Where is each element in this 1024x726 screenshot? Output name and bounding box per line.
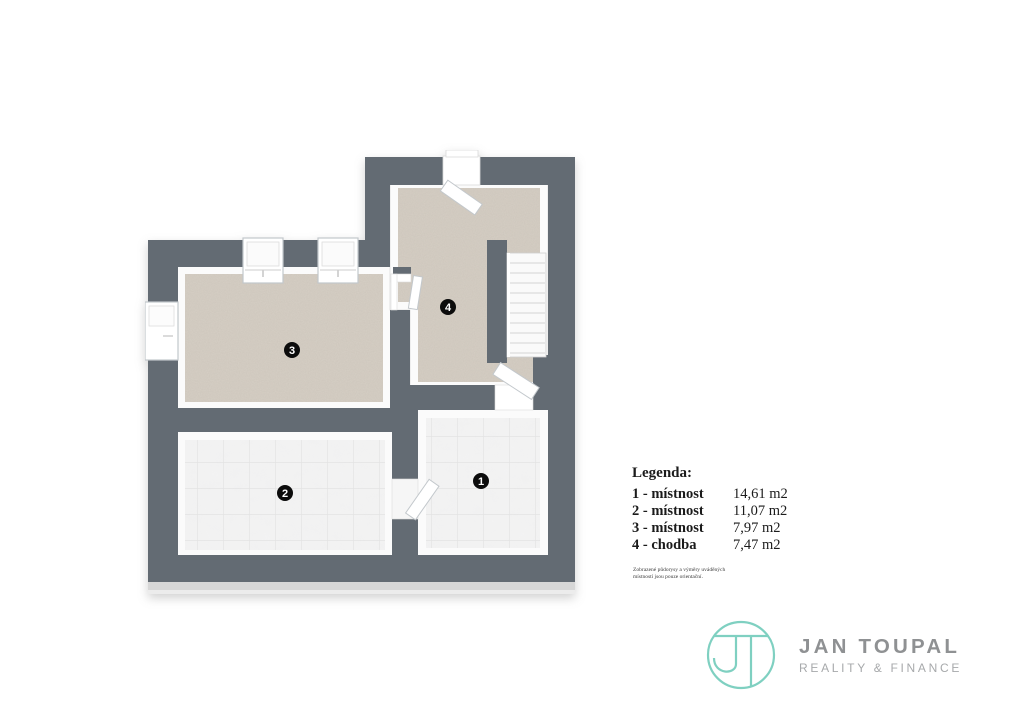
brand-logo: JAN TOUPAL REALITY & FINANCE xyxy=(705,619,962,691)
floor-slab-edge xyxy=(148,582,575,594)
room-2-badge: 2 xyxy=(277,485,293,501)
legend-item: 1 - místnost 14,61 m2 xyxy=(632,486,788,503)
window xyxy=(243,238,283,283)
legend-item-label: 4 - chodba xyxy=(632,537,733,554)
legend-item: 2 - místnost 11,07 m2 xyxy=(632,503,788,520)
legend-item-label: 3 - místnost xyxy=(632,520,733,537)
door-room3-left xyxy=(145,302,178,360)
legend-item: 4 - chodba 7,47 m2 xyxy=(632,537,788,554)
legend-title: Legenda: xyxy=(632,464,788,482)
staircase xyxy=(507,253,546,357)
room-4-number: 4 xyxy=(445,302,452,314)
room-1-badge: 1 xyxy=(473,473,489,489)
legend: Legenda: 1 - místnost 14,61 m2 2 - místn… xyxy=(632,464,788,554)
room-3-number: 3 xyxy=(289,345,295,357)
legend-item-label: 1 - místnost xyxy=(632,486,733,503)
screenshot-root: 1 2 3 4 Legenda: 1 - místnost 14,61 m2 2… xyxy=(0,0,1024,726)
disclaimer-line-2: místností jsou pouze orientační. xyxy=(633,574,725,581)
legend-item-area: 7,97 m2 xyxy=(733,520,781,537)
brand-tagline: REALITY & FINANCE xyxy=(799,661,962,675)
brand-name: JAN TOUPAL xyxy=(799,636,962,658)
legend-item-label: 2 - místnost xyxy=(632,503,733,520)
legend-disclaimer: Zobrazené půdorysy a výměry uváděných mí… xyxy=(633,567,725,581)
jt-monogram-icon xyxy=(705,619,777,691)
room-3-floor xyxy=(185,274,383,402)
brand-text: JAN TOUPAL REALITY & FINANCE xyxy=(799,636,962,675)
room-4-badge: 4 xyxy=(440,299,456,315)
disclaimer-line-1: Zobrazené půdorysy a výměry uváděných xyxy=(633,567,725,574)
floor-plan-3d: 1 2 3 4 xyxy=(145,150,580,596)
legend-item-area: 11,07 m2 xyxy=(733,503,787,520)
room-3-badge: 3 xyxy=(284,342,300,358)
legend-item: 3 - místnost 7,97 m2 xyxy=(632,520,788,537)
window xyxy=(318,238,358,283)
legend-item-area: 7,47 m2 xyxy=(733,537,781,554)
room-1-number: 1 xyxy=(478,476,484,488)
legend-item-area: 14,61 m2 xyxy=(733,486,788,503)
room-2-number: 2 xyxy=(282,488,288,500)
